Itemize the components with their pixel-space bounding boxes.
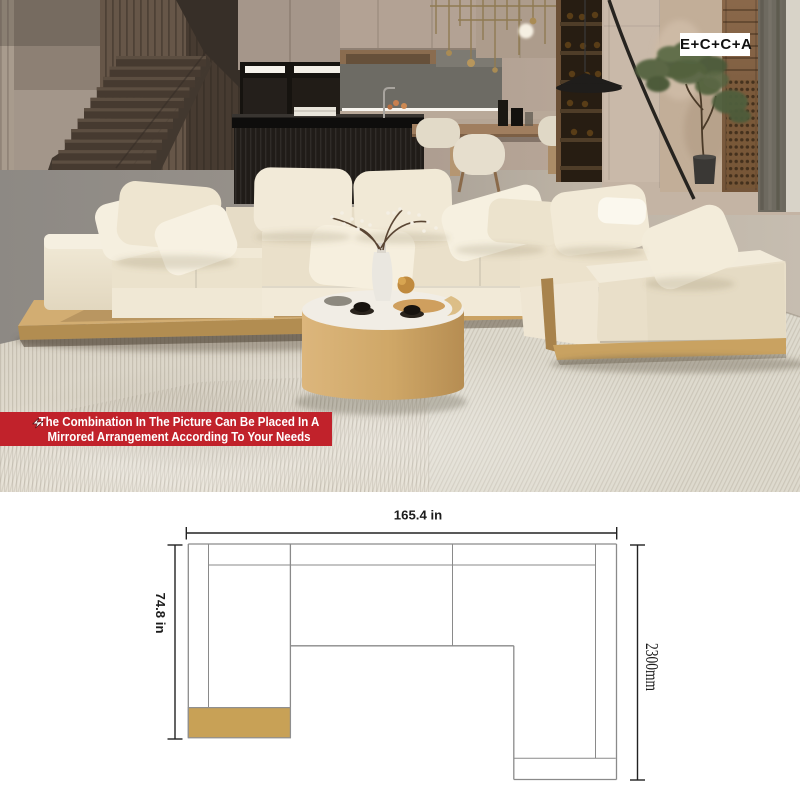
svg-text:165.4 in: 165.4 in (394, 508, 442, 523)
svg-text:2300mm: 2300mm (642, 643, 662, 691)
svg-text:74.8 in: 74.8 in (153, 593, 168, 634)
